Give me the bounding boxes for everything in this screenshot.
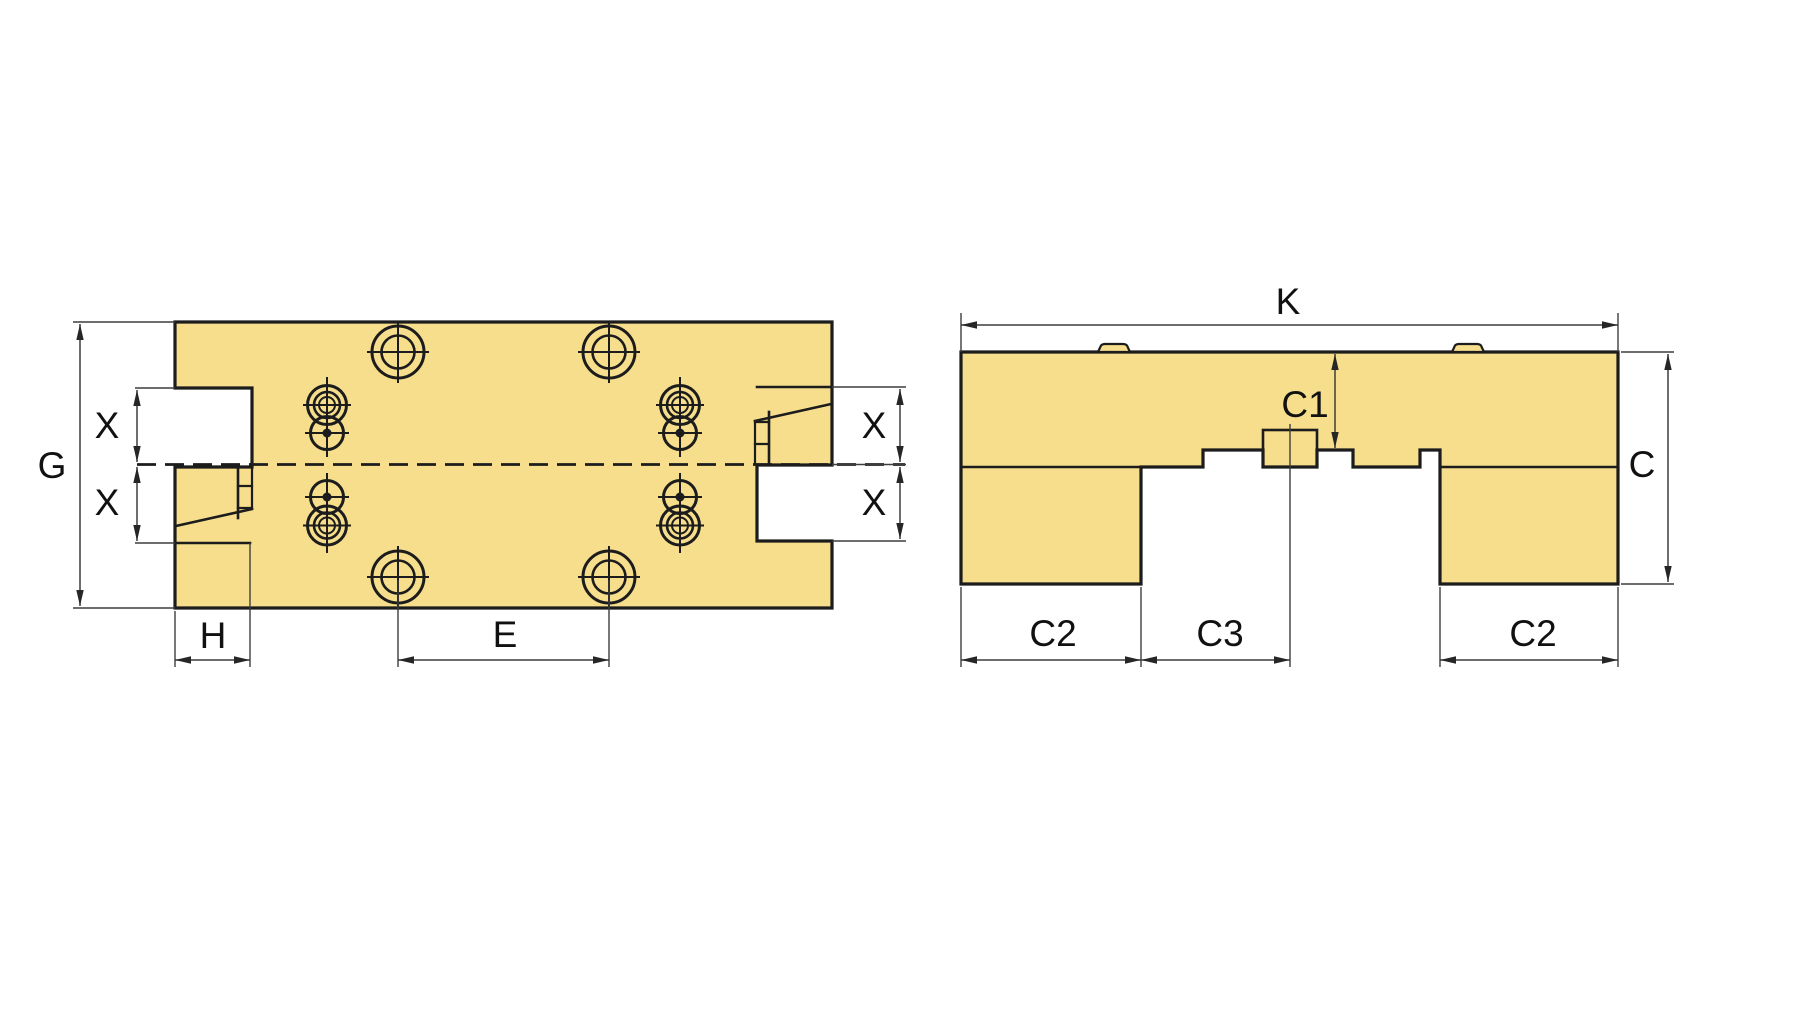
dim-label-x: X xyxy=(862,405,887,446)
dim-label-x: X xyxy=(862,482,887,523)
dimension-c2-left: C2 xyxy=(961,587,1141,667)
dimension-x-lower-right: X xyxy=(832,467,906,541)
dim-label-c1: C1 xyxy=(1281,384,1328,425)
dim-label-x: X xyxy=(95,405,120,446)
front-view: K C1 C C2 C3 xyxy=(961,281,1674,667)
dim-label-c3: C3 xyxy=(1196,613,1243,654)
dim-label-k: K xyxy=(1276,281,1301,322)
dim-label-c: C xyxy=(1629,444,1656,485)
dimension-x-upper-right: X xyxy=(832,387,906,465)
plan-view: G X X X X xyxy=(38,321,906,667)
dimension-c: C xyxy=(1621,352,1674,584)
dim-label-e: E xyxy=(493,614,518,655)
dimension-c3: C3 xyxy=(1141,613,1290,660)
dim-label-g: G xyxy=(38,445,67,486)
top-lug xyxy=(1452,344,1484,352)
dim-label-c2: C2 xyxy=(1029,613,1076,654)
dim-label-x: X xyxy=(95,482,120,523)
dimension-x-lower-left: X xyxy=(95,467,175,543)
dim-label-h: H xyxy=(200,615,227,656)
dimension-c2-right: C2 xyxy=(1440,587,1618,667)
dimension-x-upper-left: X xyxy=(95,388,175,462)
dimension-k: K xyxy=(961,281,1618,352)
top-lug xyxy=(1098,344,1130,352)
technical-drawing: G X X X X xyxy=(0,0,1800,1028)
dim-label-c2: C2 xyxy=(1509,613,1556,654)
